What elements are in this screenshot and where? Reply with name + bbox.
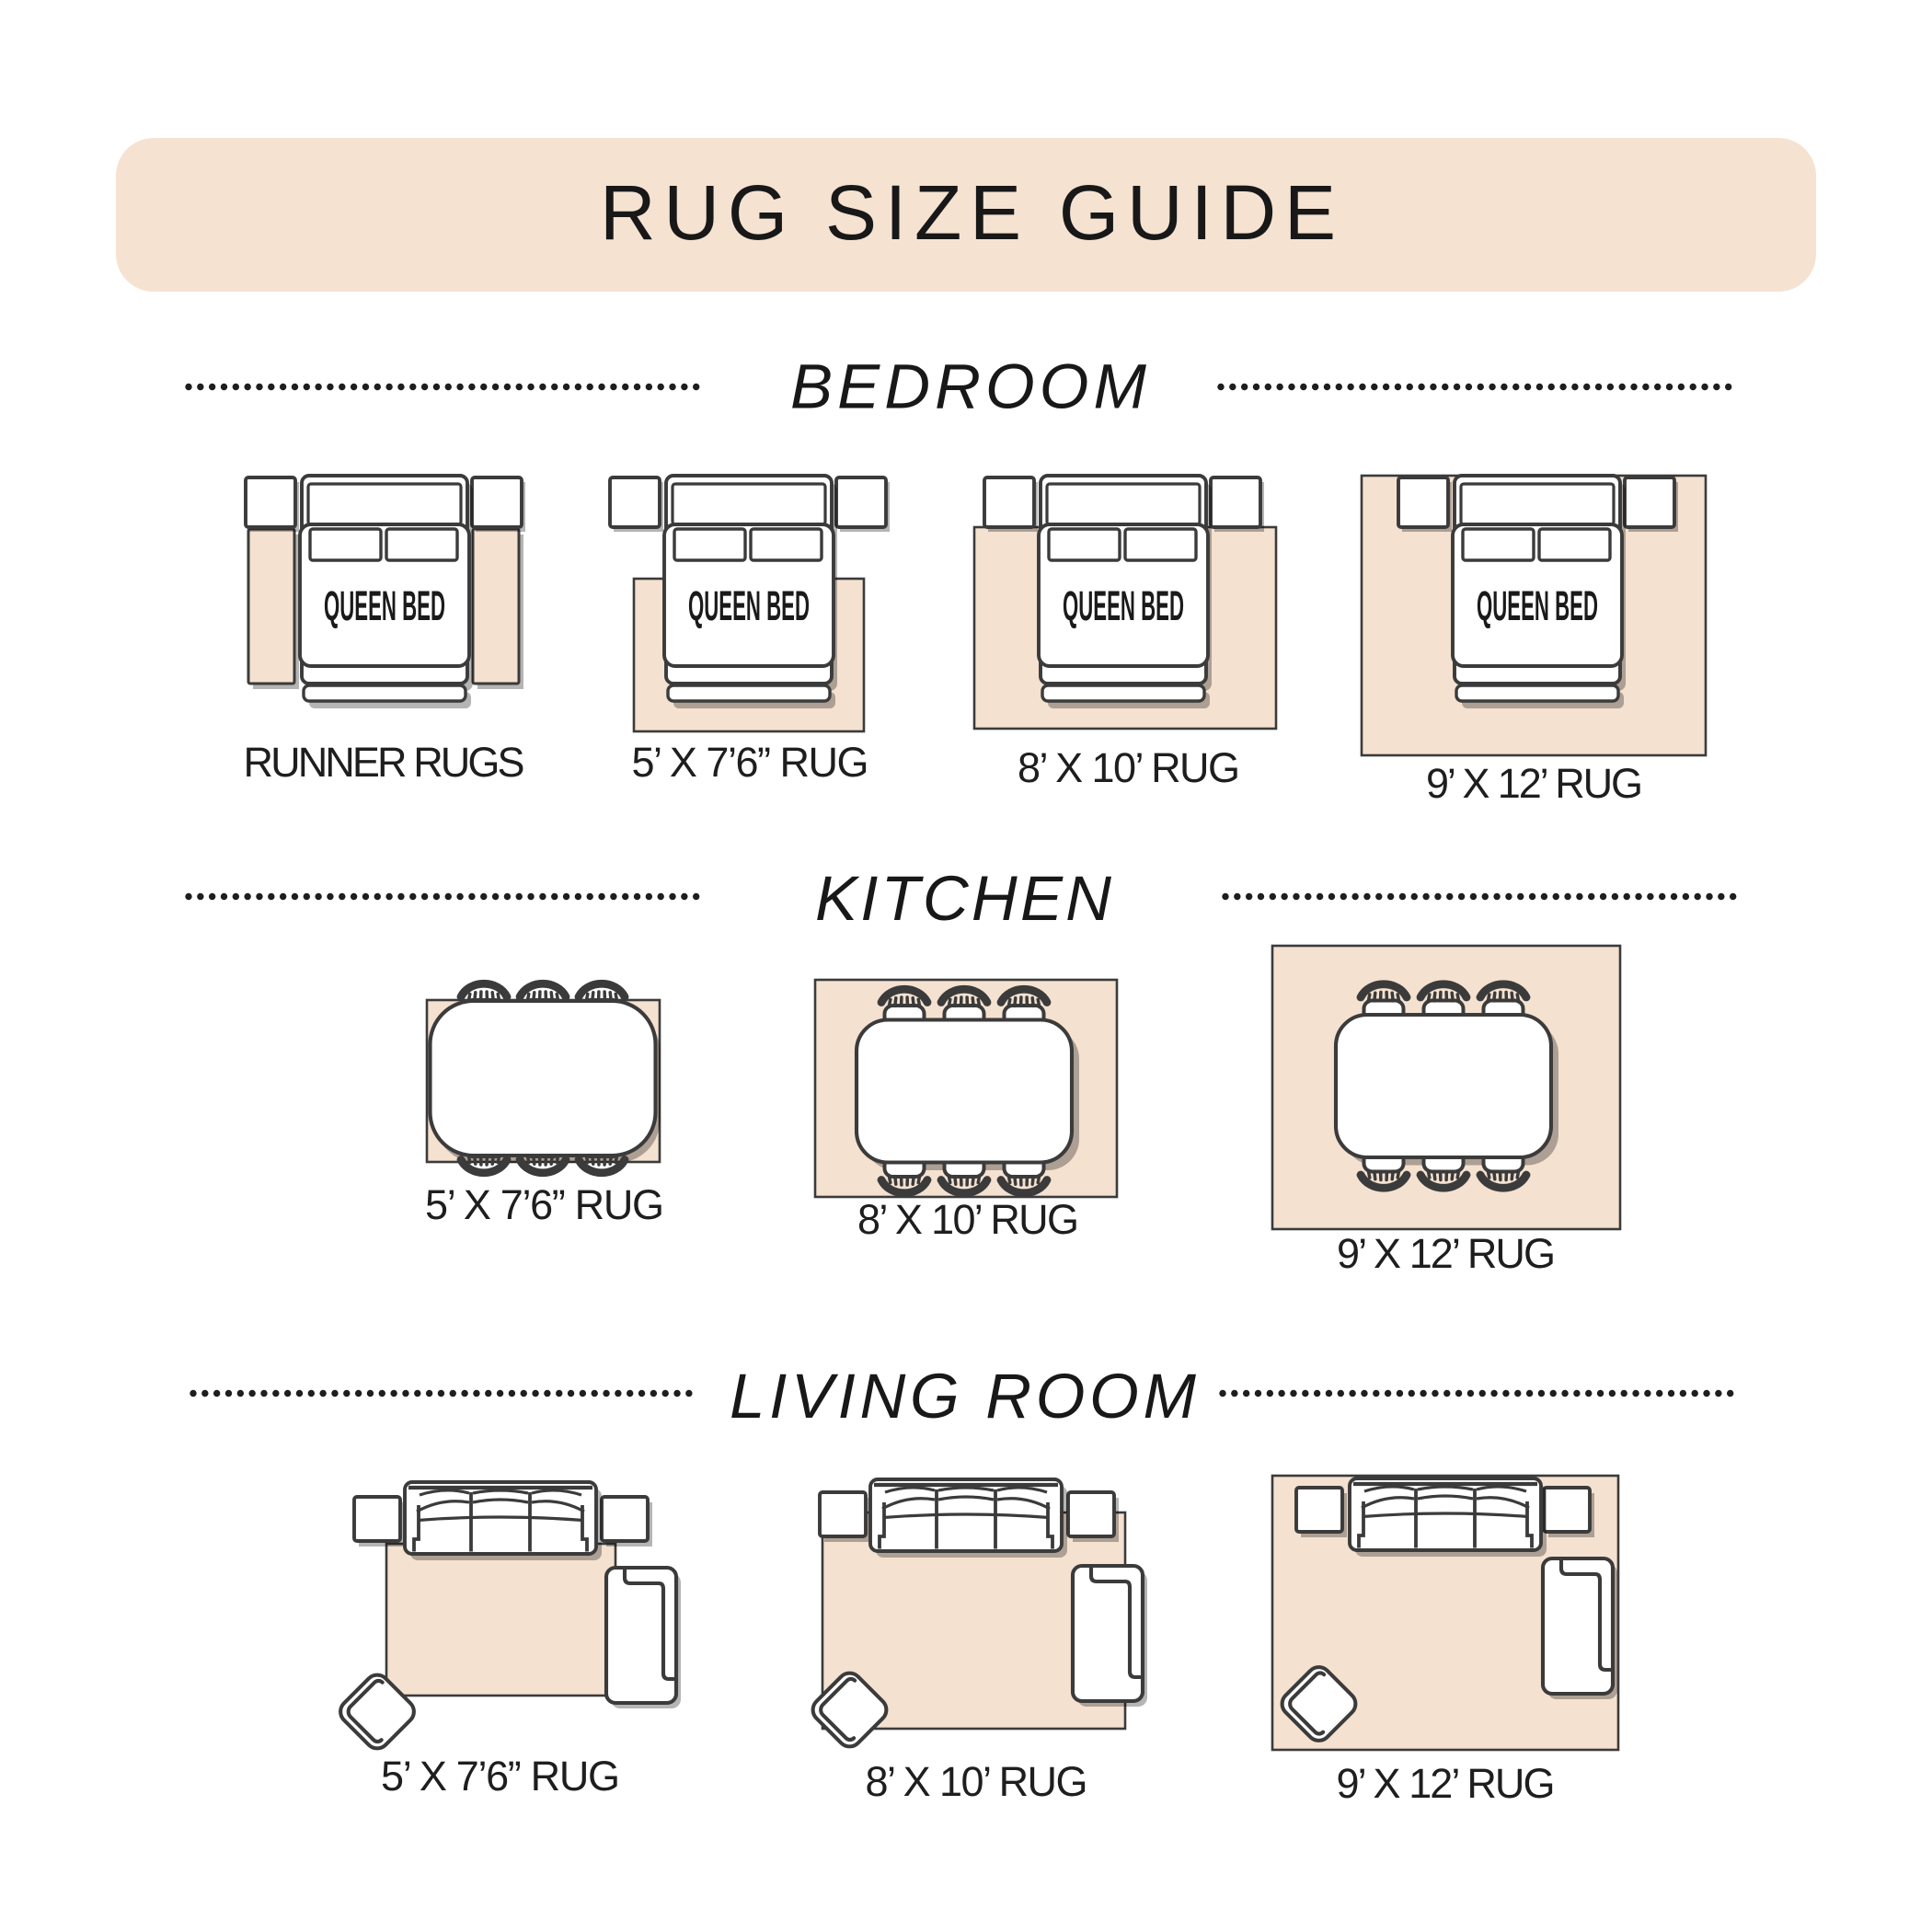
svg-text:5’ X 7’6” RUG: 5’ X 7’6” RUG [425, 1181, 664, 1228]
svg-text:LIVING ROOM: LIVING ROOM [730, 1361, 1197, 1432]
svg-text:5’ X 7’6” RUG: 5’ X 7’6” RUG [381, 1753, 620, 1800]
svg-text:5’ X 7’6” RUG: 5’ X 7’6” RUG [632, 739, 869, 786]
svg-text:9’ X 12’ RUG: 9’ X 12’ RUG [1337, 1230, 1556, 1277]
svg-text:9’ X 12’ RUG: 9’ X 12’ RUG [1337, 1760, 1556, 1807]
svg-text:8’ X 10’ RUG: 8’ X 10’ RUG [857, 1196, 1079, 1243]
svg-text:8’ X 10’ RUG: 8’ X 10’ RUG [866, 1758, 1088, 1805]
svg-text:KITCHEN: KITCHEN [815, 863, 1111, 934]
svg-text:9’ X 12’ RUG: 9’ X 12’ RUG [1426, 760, 1643, 807]
svg-text:8’ X 10’ RUG: 8’ X 10’ RUG [1018, 744, 1240, 791]
svg-text:RUNNER RUGS: RUNNER RUGS [244, 739, 525, 786]
svg-text:BEDROOM: BEDROOM [790, 351, 1147, 422]
